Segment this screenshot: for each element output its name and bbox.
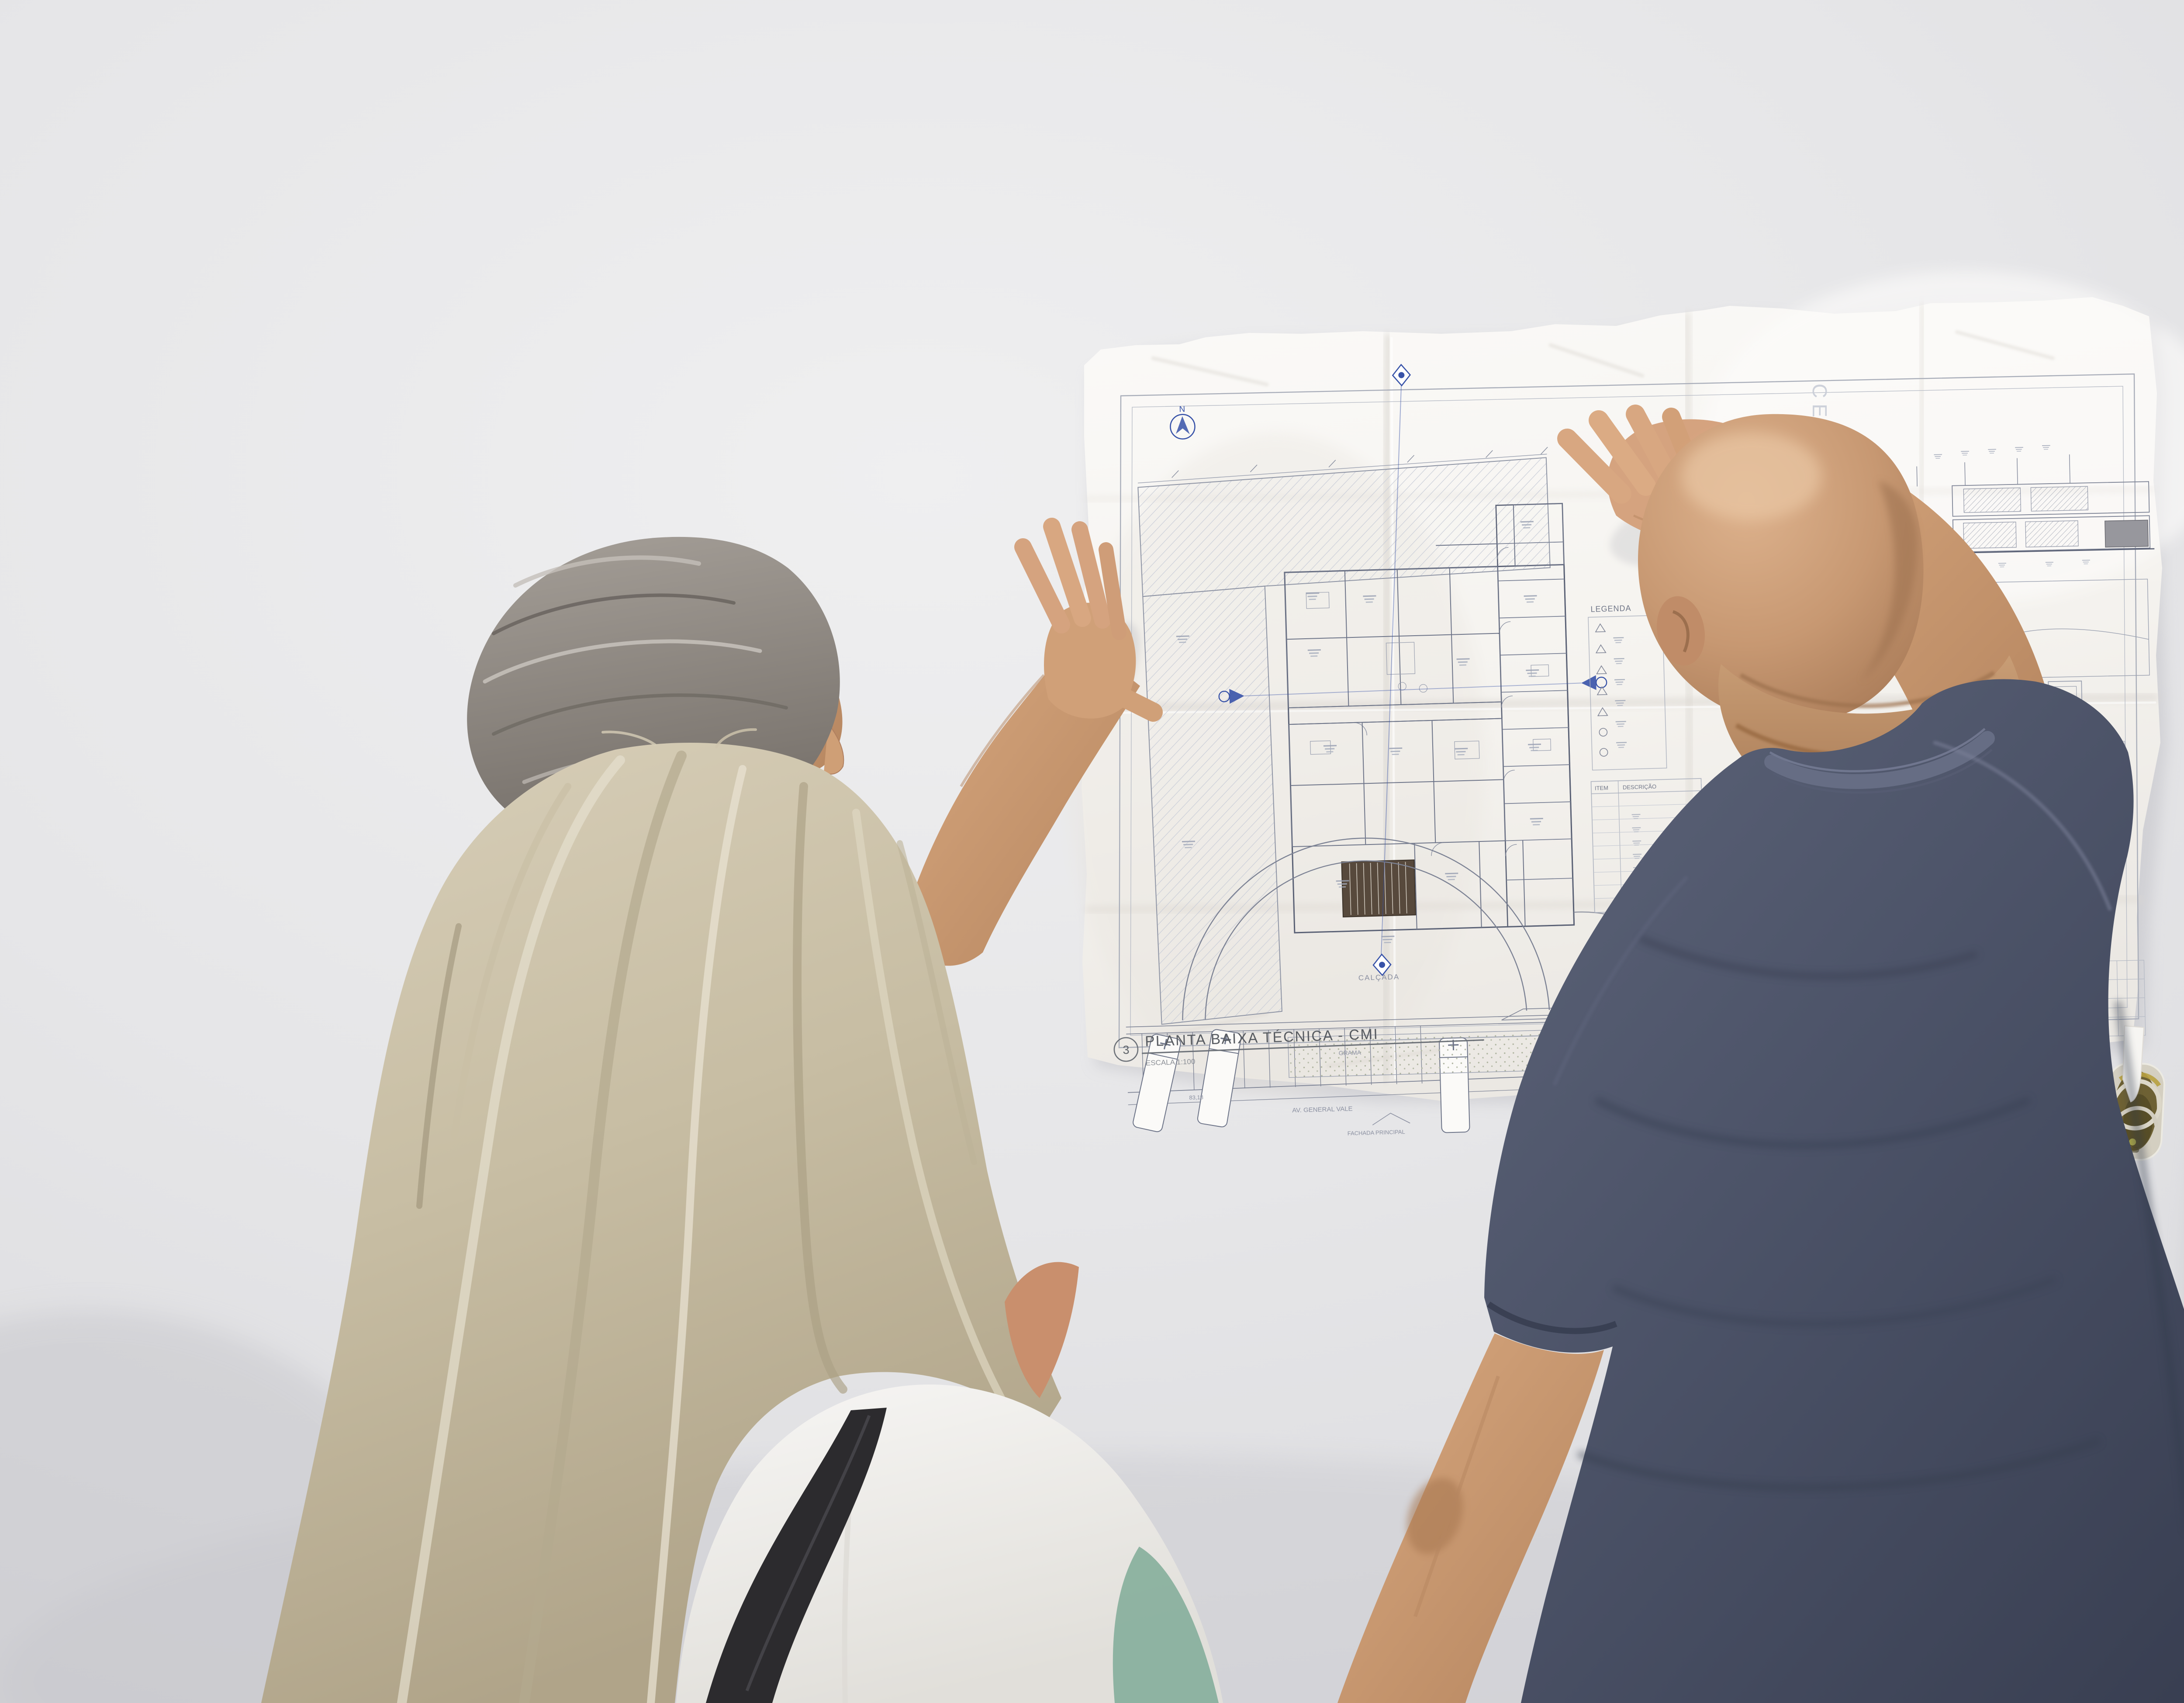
north-label: N — [1179, 405, 1185, 414]
scale-label: ESCALA 1:100 — [1146, 1057, 1196, 1067]
scene: N CALÇADA CALÇADA GRAMA AV. GENERAL VALE… — [0, 0, 2184, 1703]
table-col-item: ITEM — [1595, 785, 1608, 792]
sheet-number: 3 — [1123, 1043, 1130, 1056]
legend-title: LEGENDA — [1590, 604, 1631, 614]
man-bald-head-highlight — [1682, 433, 1821, 520]
dim-label: 83,18 — [1189, 1094, 1203, 1101]
grass-label: GRAMA — [1338, 1049, 1361, 1056]
elevation-gray-box — [2105, 520, 2148, 547]
photo-stage: N CALÇADA CALÇADA GRAMA AV. GENERAL VALE… — [0, 0, 2184, 1703]
site-hatch-left — [1143, 586, 1282, 1025]
table-col-desc: DESCRIÇÃO — [1623, 783, 1657, 791]
sidewalk-label-left: CALÇADA — [1358, 973, 1400, 982]
